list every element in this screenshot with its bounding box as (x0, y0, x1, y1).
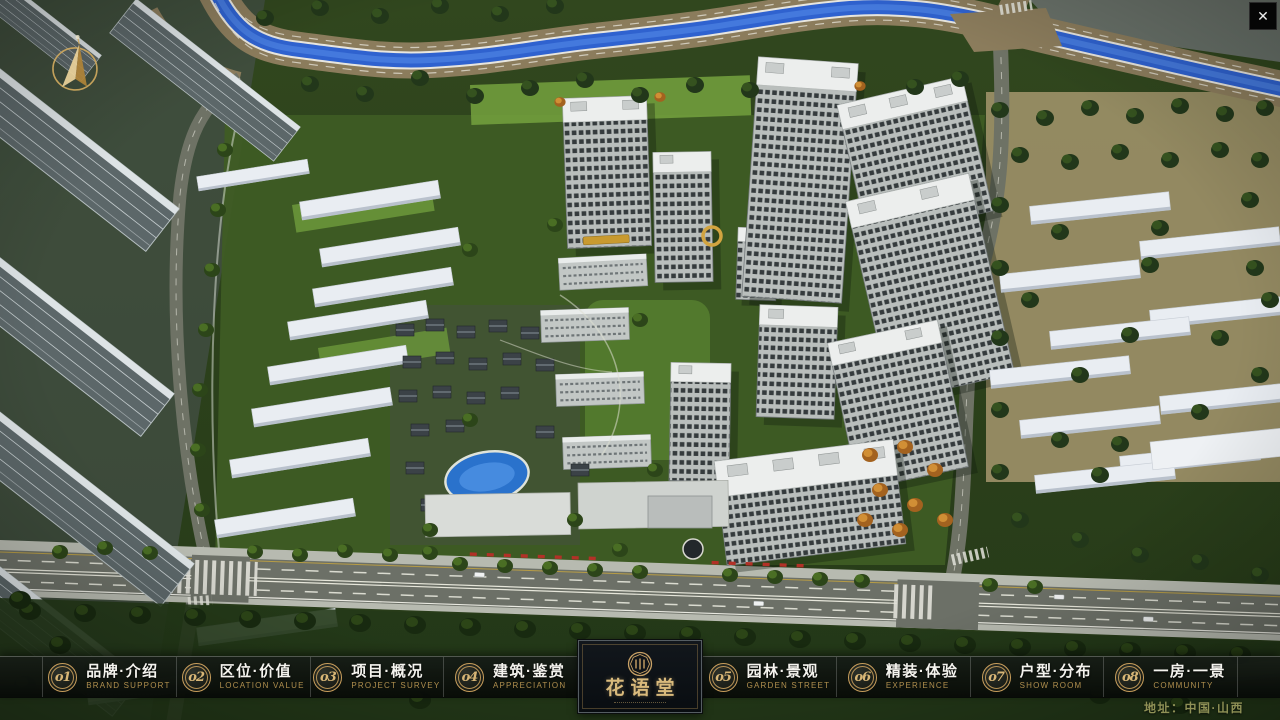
project-logo[interactable]: 花语堂 (578, 640, 702, 713)
nav-item-one-room-one-view[interactable]: o8 一房·一景 COMMUNITY (1104, 657, 1238, 697)
nav-item-label-zh: 精装·体验 (886, 664, 959, 680)
nav-item-label-zh: 一房·一景 (1153, 664, 1226, 680)
nav-item-label-zh: 户型·分布 (1020, 664, 1093, 680)
compass-icon (48, 34, 104, 98)
nav-item-label-zh: 品牌·介绍 (86, 664, 159, 680)
nav-item-label-zh: 区位·价值 (220, 664, 293, 680)
nav-item-label-en: APPRECIATION (493, 682, 566, 690)
nav-item-number: o1 (55, 670, 71, 685)
nav-item-number: o6 (855, 670, 871, 685)
menu-bar-spacer (0, 657, 43, 697)
nav-number-badge: o3 (313, 663, 342, 692)
nav-item-project-overview[interactable]: o3 项目·概况 PROJECT SURVEY (311, 657, 445, 697)
app-root: ✕ o1 品牌·介绍 BRAND SUPPORT o2 区位·价值 LOCATI… (0, 0, 1280, 720)
nav-number-badge: o2 (182, 663, 211, 692)
nav-item-label-en: LOCATION VALUE (220, 682, 305, 690)
nav-item-number: o8 (1122, 670, 1138, 685)
nav-number-badge: o4 (455, 663, 484, 692)
close-icon: ✕ (1257, 9, 1269, 23)
nav-number-badge: o1 (48, 663, 77, 692)
nav-item-number: o7 (988, 670, 1004, 685)
nav-number-badge: o5 (709, 663, 738, 692)
nav-item-label-zh: 建筑·鉴赏 (493, 664, 566, 680)
nav-item-label-en: SHOW ROOM (1020, 682, 1083, 690)
nav-item-interior-experience[interactable]: o6 精装·体验 EXPERIENCE (837, 657, 971, 697)
nav-number-badge: o8 (1115, 663, 1144, 692)
nav-number-badge: o6 (848, 663, 877, 692)
logo-subtitle-line (614, 702, 666, 703)
nav-item-number: o2 (188, 670, 204, 685)
nav-item-garden-landscape[interactable]: o5 园林·景观 GARDEN STREET (703, 657, 837, 697)
menu-bar-spacer (1238, 657, 1280, 697)
nav-item-label-zh: 项目·概况 (351, 664, 424, 680)
masterplan-render (0, 0, 1280, 720)
nav-item-location-value[interactable]: o2 区位·价值 LOCATION VALUE (177, 657, 311, 697)
nav-item-label-zh: 园林·景观 (747, 664, 820, 680)
project-address: 地址：中国·山西 (1144, 699, 1244, 716)
nav-item-brand-intro[interactable]: o1 品牌·介绍 BRAND SUPPORT (43, 657, 177, 697)
logo-cell: 花语堂 (578, 657, 703, 697)
nav-item-number: o5 (715, 670, 731, 685)
nav-item-floorplan-distribution[interactable]: o7 户型·分布 SHOW ROOM (971, 657, 1105, 697)
nav-item-number: o4 (462, 670, 478, 685)
nav-item-label-en: BRAND SUPPORT (86, 682, 170, 690)
nav-item-label-en: PROJECT SURVEY (351, 682, 440, 690)
nav-item-label-en: COMMUNITY (1153, 682, 1213, 690)
nav-item-label-en: EXPERIENCE (886, 682, 950, 690)
nav-item-number: o3 (320, 670, 336, 685)
close-button[interactable]: ✕ (1249, 2, 1277, 30)
nav-number-badge: o7 (982, 663, 1011, 692)
nav-item-label-en: GARDEN STREET (747, 682, 831, 690)
logo-title: 花语堂 (599, 679, 680, 698)
logo-seal-icon (627, 651, 653, 677)
nav-item-architecture-appreciation[interactable]: o4 建筑·鉴赏 APPRECIATION (444, 657, 578, 697)
bottom-menu-bar: o1 品牌·介绍 BRAND SUPPORT o2 区位·价值 LOCATION… (0, 656, 1280, 698)
